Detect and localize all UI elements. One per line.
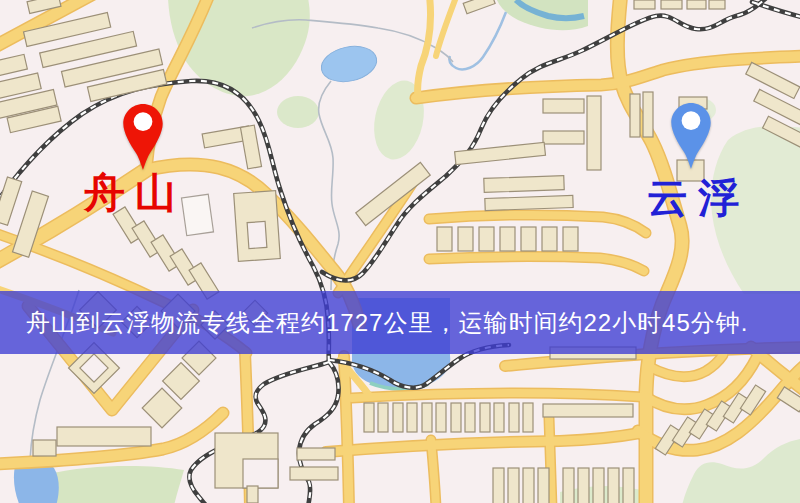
destination-pin-icon[interactable] (670, 102, 712, 171)
destination-label: 云浮 (647, 178, 749, 219)
destination-pin-hole (682, 111, 701, 130)
origin-marker[interactable] (122, 103, 164, 172)
origin-label: 舟山 (84, 173, 186, 214)
origin-pin-icon[interactable] (122, 103, 164, 172)
destination-marker[interactable] (670, 102, 712, 171)
map-screenshot: 舟山 云浮 舟山到云浮物流专线全程约1727公里，运输时间约22小时45分钟. (0, 0, 800, 503)
route-info-text: 舟山到云浮物流专线全程约1727公里，运输时间约22小时45分钟. (26, 307, 748, 339)
origin-pin-hole (134, 112, 153, 131)
route-info-banner: 舟山到云浮物流专线全程约1727公里，运输时间约22小时45分钟. (0, 291, 800, 354)
map-canvas (0, 0, 800, 503)
